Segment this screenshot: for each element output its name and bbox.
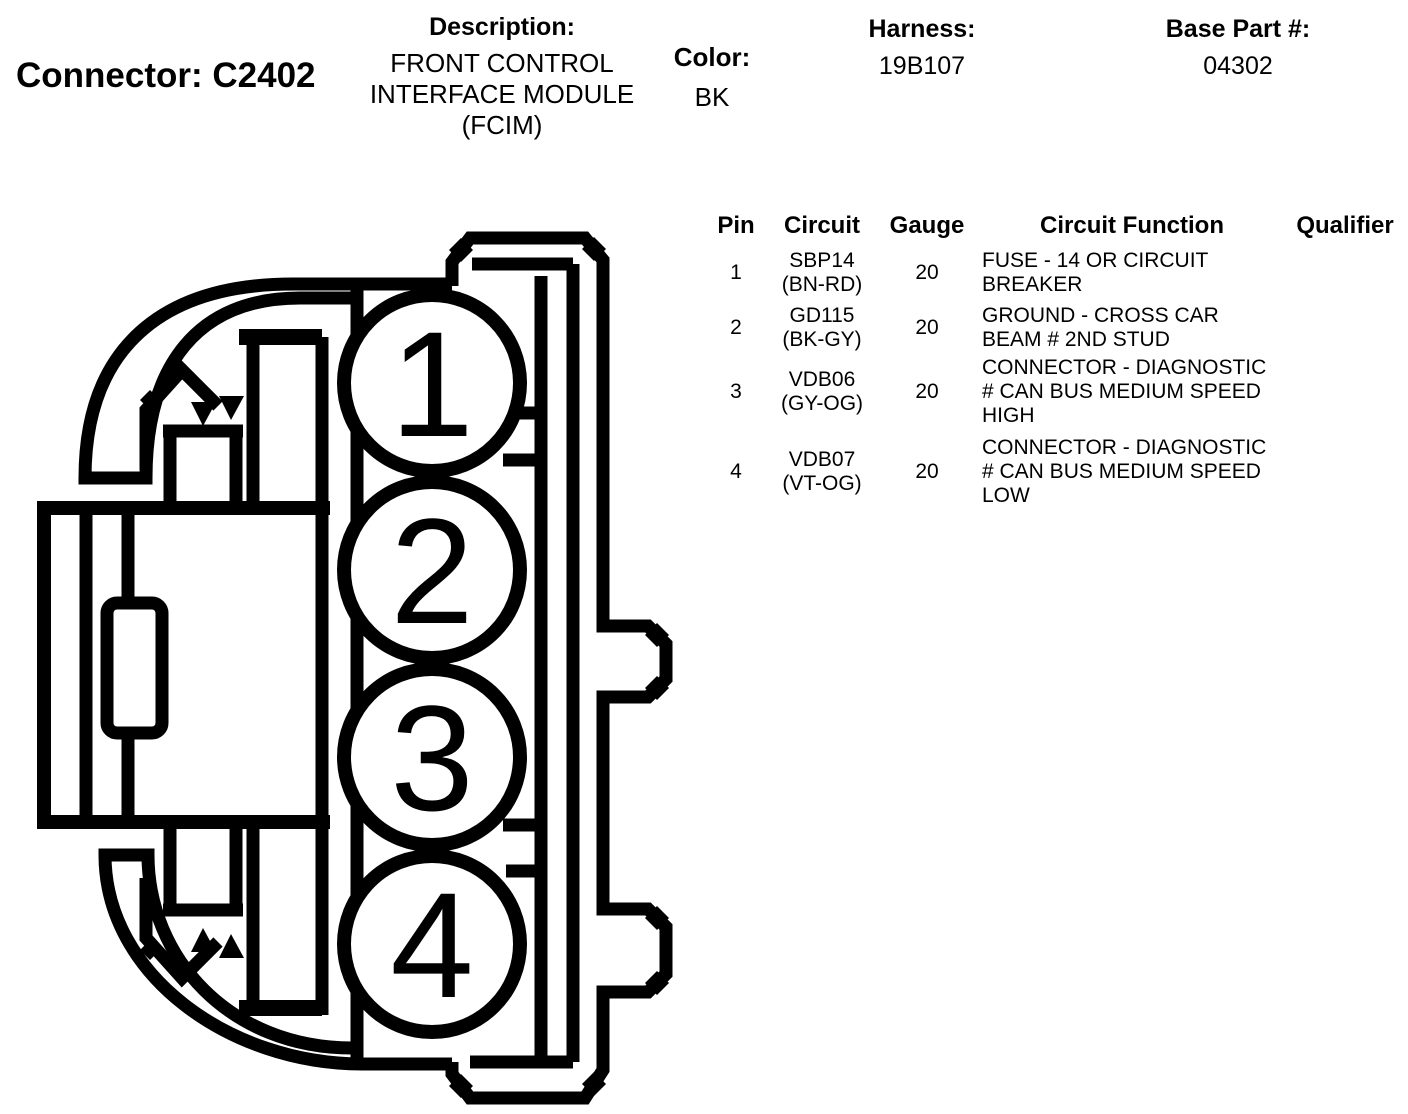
connector-face-diagram: 1 2 3 4 (0, 0, 1408, 1114)
lower-lock-box (163, 822, 243, 910)
latch-slot (107, 603, 162, 733)
upper-lock-box (163, 431, 243, 508)
cavity-number-4: 4 (390, 861, 473, 1029)
cavity-number-1: 1 (390, 300, 473, 468)
cavity-number-2: 2 (390, 487, 473, 655)
connector-pinout-page: Connector: C2402 Description: FRONT CONT… (0, 0, 1408, 1114)
cavity-number-3: 3 (390, 674, 473, 842)
